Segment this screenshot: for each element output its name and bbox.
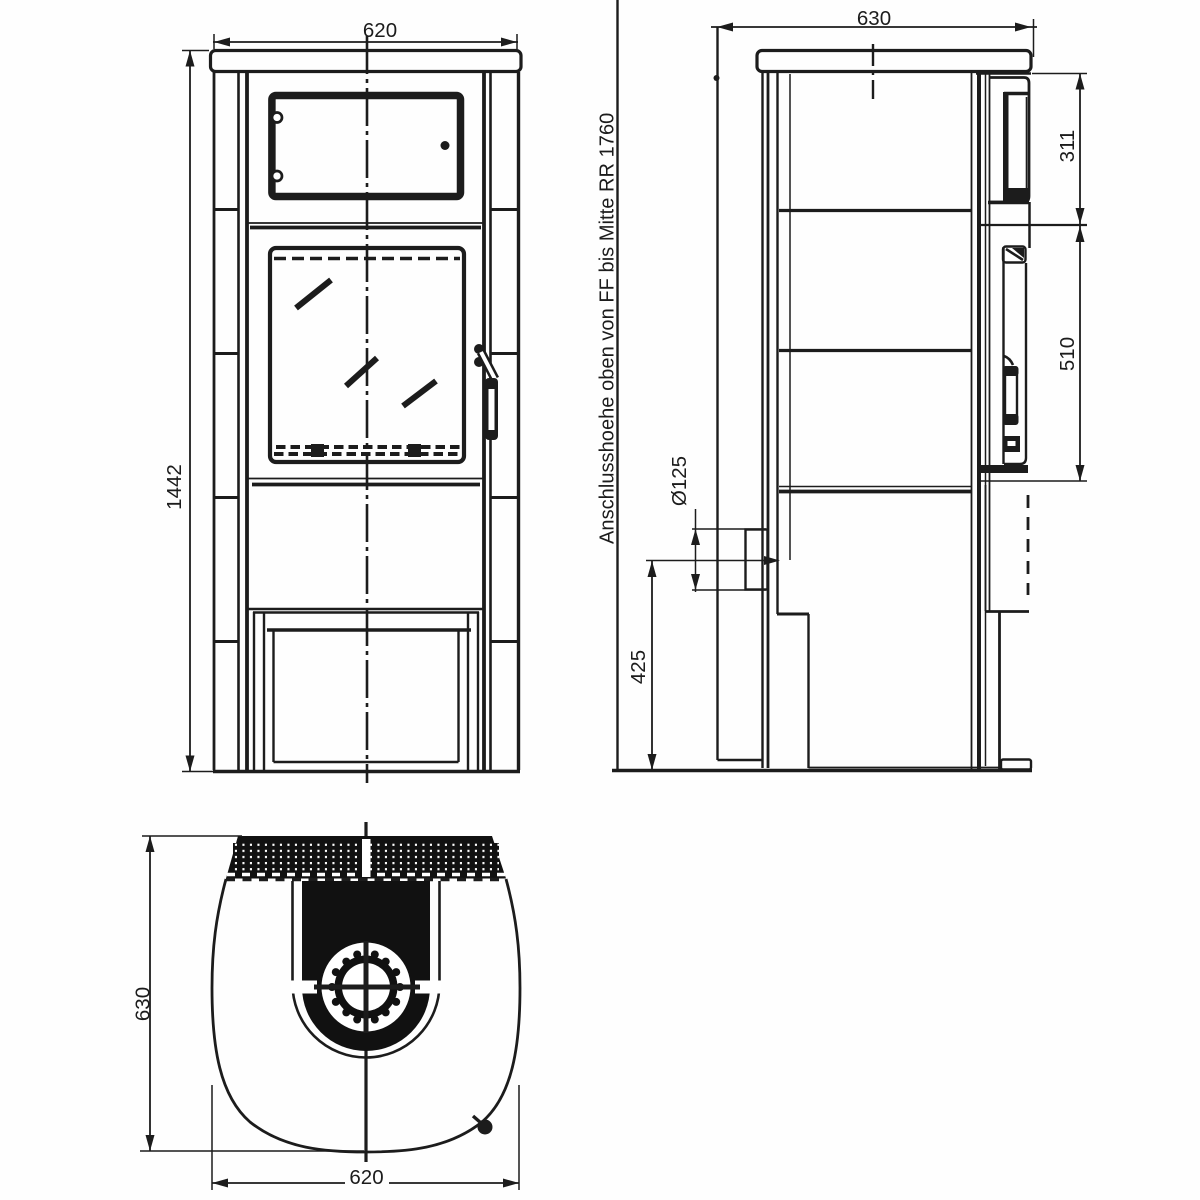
svg-text:620: 620 (349, 1166, 383, 1189)
svg-text:311: 311 (1056, 130, 1079, 163)
svg-text:Ø125: Ø125 (668, 456, 691, 506)
svg-text:630: 630 (132, 987, 155, 1021)
svg-text:510: 510 (1056, 337, 1079, 371)
svg-text:425: 425 (627, 650, 650, 684)
svg-text:1442: 1442 (163, 464, 186, 510)
svg-text:Anschlusshoehe oben von FF bis: Anschlusshoehe oben von FF bis Mitte RR … (597, 113, 619, 544)
